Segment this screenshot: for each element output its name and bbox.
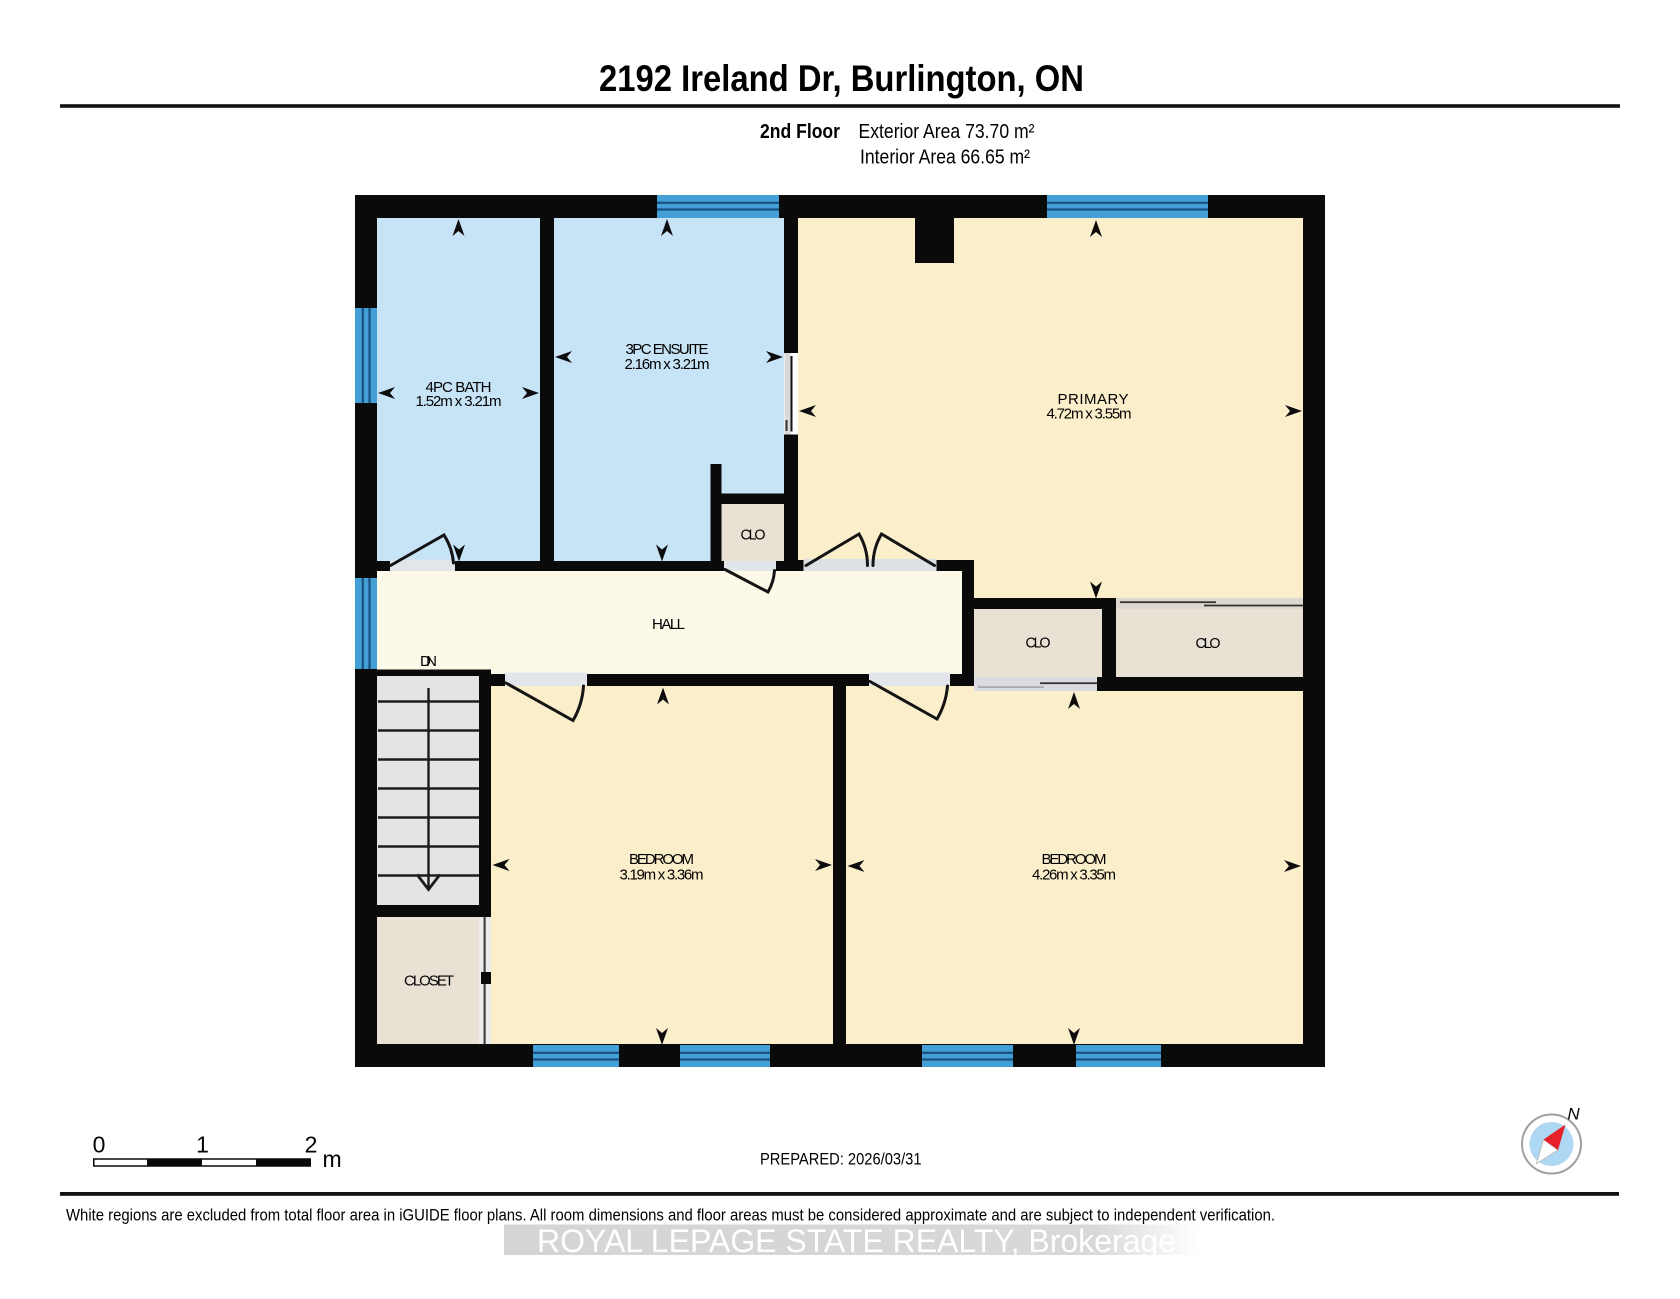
svg-text:2192 Ireland Dr, Burlington, O: 2192 Ireland Dr, Burlington, ON bbox=[599, 58, 1084, 99]
svg-text:m: m bbox=[323, 1146, 342, 1172]
svg-text:1: 1 bbox=[196, 1132, 209, 1158]
svg-text:Exterior Area 73.70 m²: Exterior Area 73.70 m² bbox=[859, 120, 1035, 143]
svg-text:DN: DN bbox=[420, 653, 437, 670]
svg-text:CLO: CLO bbox=[741, 528, 766, 544]
svg-text:CLO: CLO bbox=[1026, 636, 1051, 652]
svg-text:2.16m x 3.21m: 2.16m x 3.21m bbox=[625, 356, 710, 373]
svg-text:1.52m x 3.21m: 1.52m x 3.21m bbox=[416, 393, 502, 410]
svg-text:4.26m x 3.35m: 4.26m x 3.35m bbox=[1032, 866, 1116, 883]
svg-text:2nd Floor: 2nd Floor bbox=[760, 120, 840, 143]
svg-text:CLO: CLO bbox=[1196, 636, 1221, 652]
svg-text:ROYAL LEPAGE STATE REALTY, Bro: ROYAL LEPAGE STATE REALTY, Brokerage bbox=[537, 1223, 1176, 1259]
svg-text:HALL: HALL bbox=[652, 616, 685, 633]
svg-text:0: 0 bbox=[93, 1132, 106, 1158]
svg-text:Interior Area 66.65 m²: Interior Area 66.65 m² bbox=[860, 146, 1030, 169]
svg-text:N: N bbox=[1567, 1105, 1580, 1124]
svg-text:3.19m x 3.36m: 3.19m x 3.36m bbox=[620, 866, 704, 883]
svg-text:PREPARED: 2026/03/31: PREPARED: 2026/03/31 bbox=[760, 1150, 922, 1169]
svg-text:4.72m x 3.55m: 4.72m x 3.55m bbox=[1047, 406, 1132, 423]
svg-text:White regions are excluded fro: White regions are excluded from total fl… bbox=[66, 1207, 1275, 1225]
svg-text:CLOSET: CLOSET bbox=[404, 973, 454, 990]
svg-text:2: 2 bbox=[305, 1132, 318, 1158]
